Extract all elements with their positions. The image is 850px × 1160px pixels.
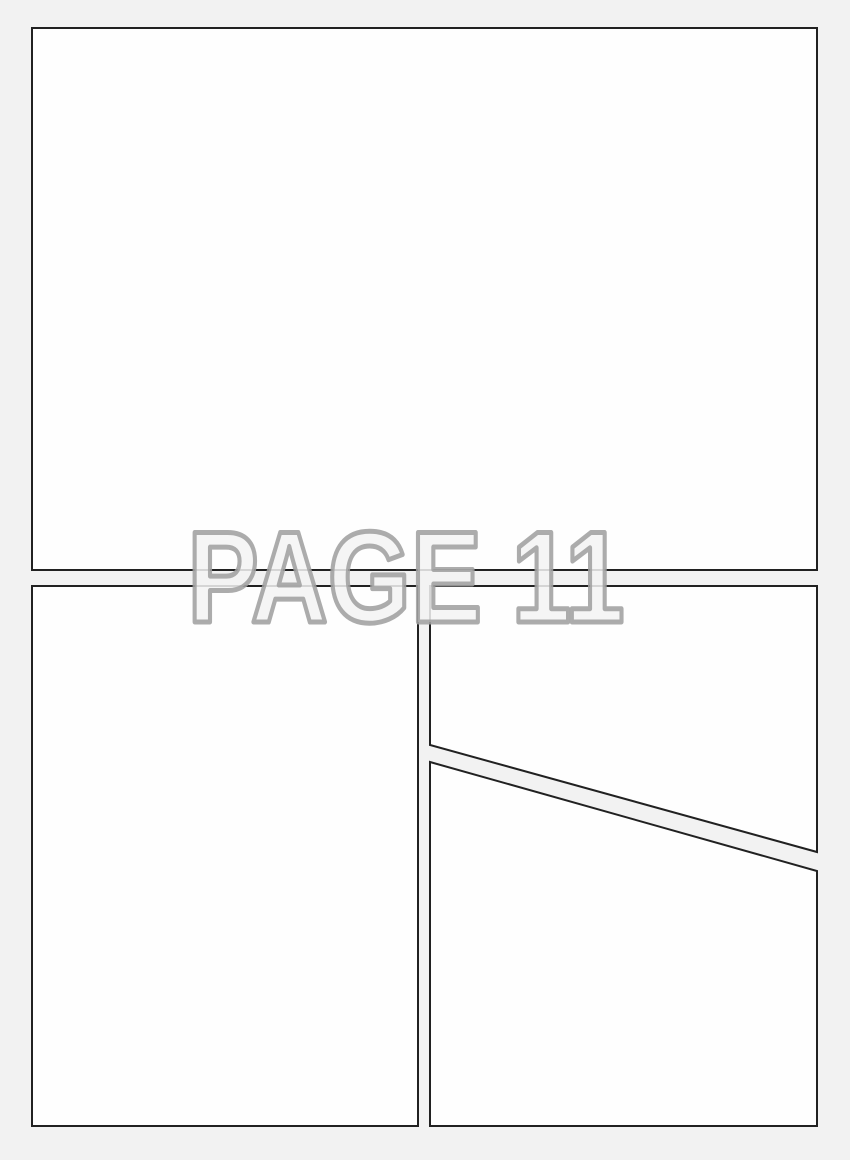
page-number-watermark: PAGE 11 [188, 504, 625, 650]
comic-page-template: PAGE 11 [0, 0, 850, 1160]
page-background: { "watermark": { "text": "PAGE 11" }, "t… [0, 0, 850, 1160]
panel-top [32, 28, 817, 570]
panel-layout: PAGE 11 [0, 0, 850, 1160]
panel-bottom-left [32, 586, 418, 1126]
